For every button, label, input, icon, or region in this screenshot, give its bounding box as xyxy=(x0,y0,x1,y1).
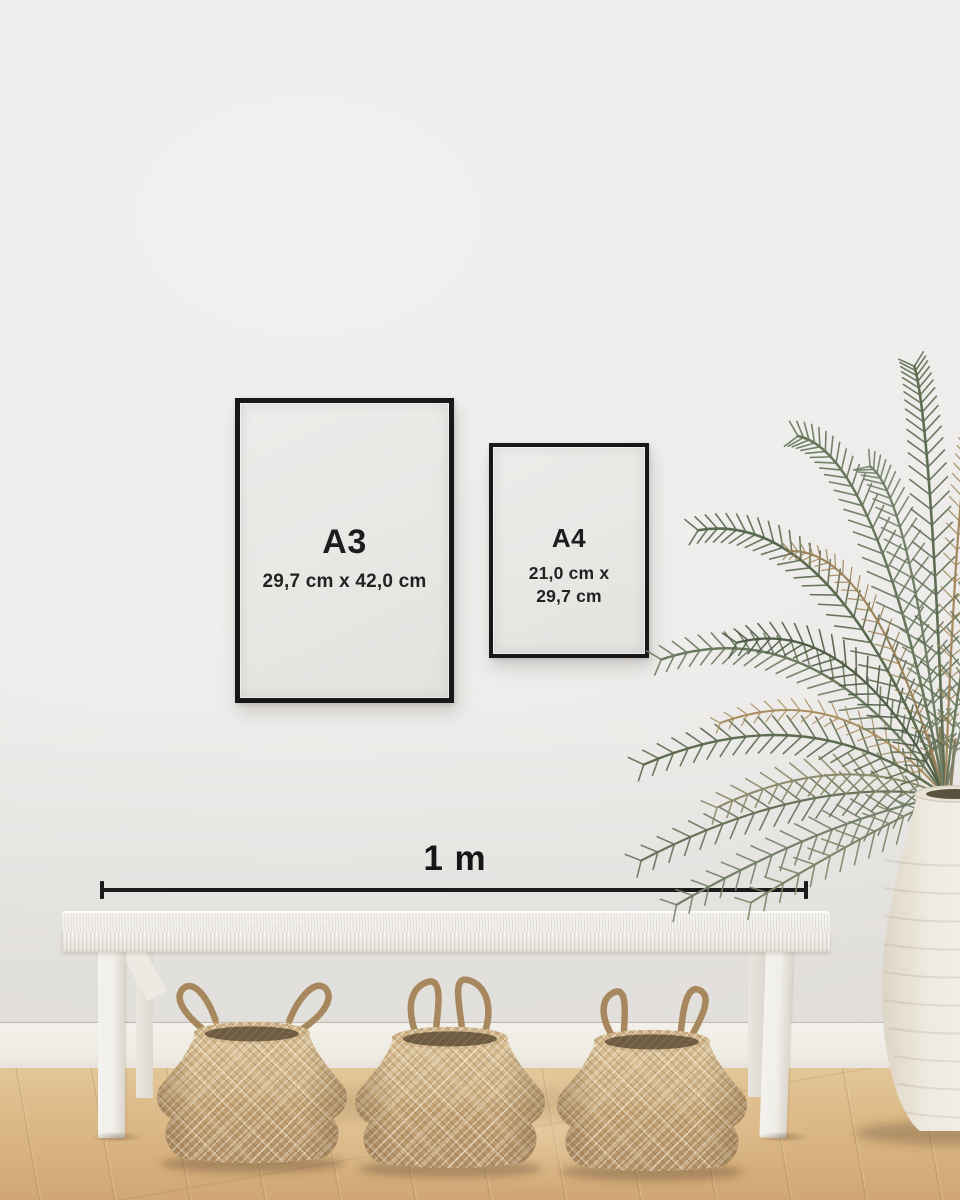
scale-bar-tick-left xyxy=(100,881,104,899)
poster-paper-a3: A3 29,7 cm x 42,0 cm xyxy=(240,403,449,698)
room-scene: A3 29,7 cm x 42,0 cm A4 21,0 cm x 29,7 c… xyxy=(0,0,960,1200)
scale-bar-label: 1 m xyxy=(102,839,808,879)
scale-bar-tick-right xyxy=(804,881,808,899)
scale-bar-line xyxy=(102,888,806,892)
poster-frame-a4: A4 21,0 cm x 29,7 cm xyxy=(489,443,649,658)
size-dimensions-a4-line1: 21,0 cm x xyxy=(529,562,610,585)
size-label-a3: A3 xyxy=(263,523,427,562)
seagrass-basket-1 xyxy=(137,933,367,1148)
seagrass-basket-3 xyxy=(537,941,767,1156)
bench-seat xyxy=(62,911,830,935)
seagrass-basket-2 xyxy=(335,938,565,1153)
bench-leg-front-left xyxy=(98,948,125,1138)
poster-frame-a3: A3 29,7 cm x 42,0 cm xyxy=(235,398,454,703)
poster-paper-a4: A4 21,0 cm x 29,7 cm xyxy=(493,447,645,654)
size-dimensions-a4: 21,0 cm x 29,7 cm xyxy=(529,562,610,608)
size-dimensions-a4-line2: 29,7 cm xyxy=(529,585,610,608)
size-dimensions-a3: 29,7 cm x 42,0 cm xyxy=(263,571,427,593)
size-label-a4: A4 xyxy=(529,523,610,554)
